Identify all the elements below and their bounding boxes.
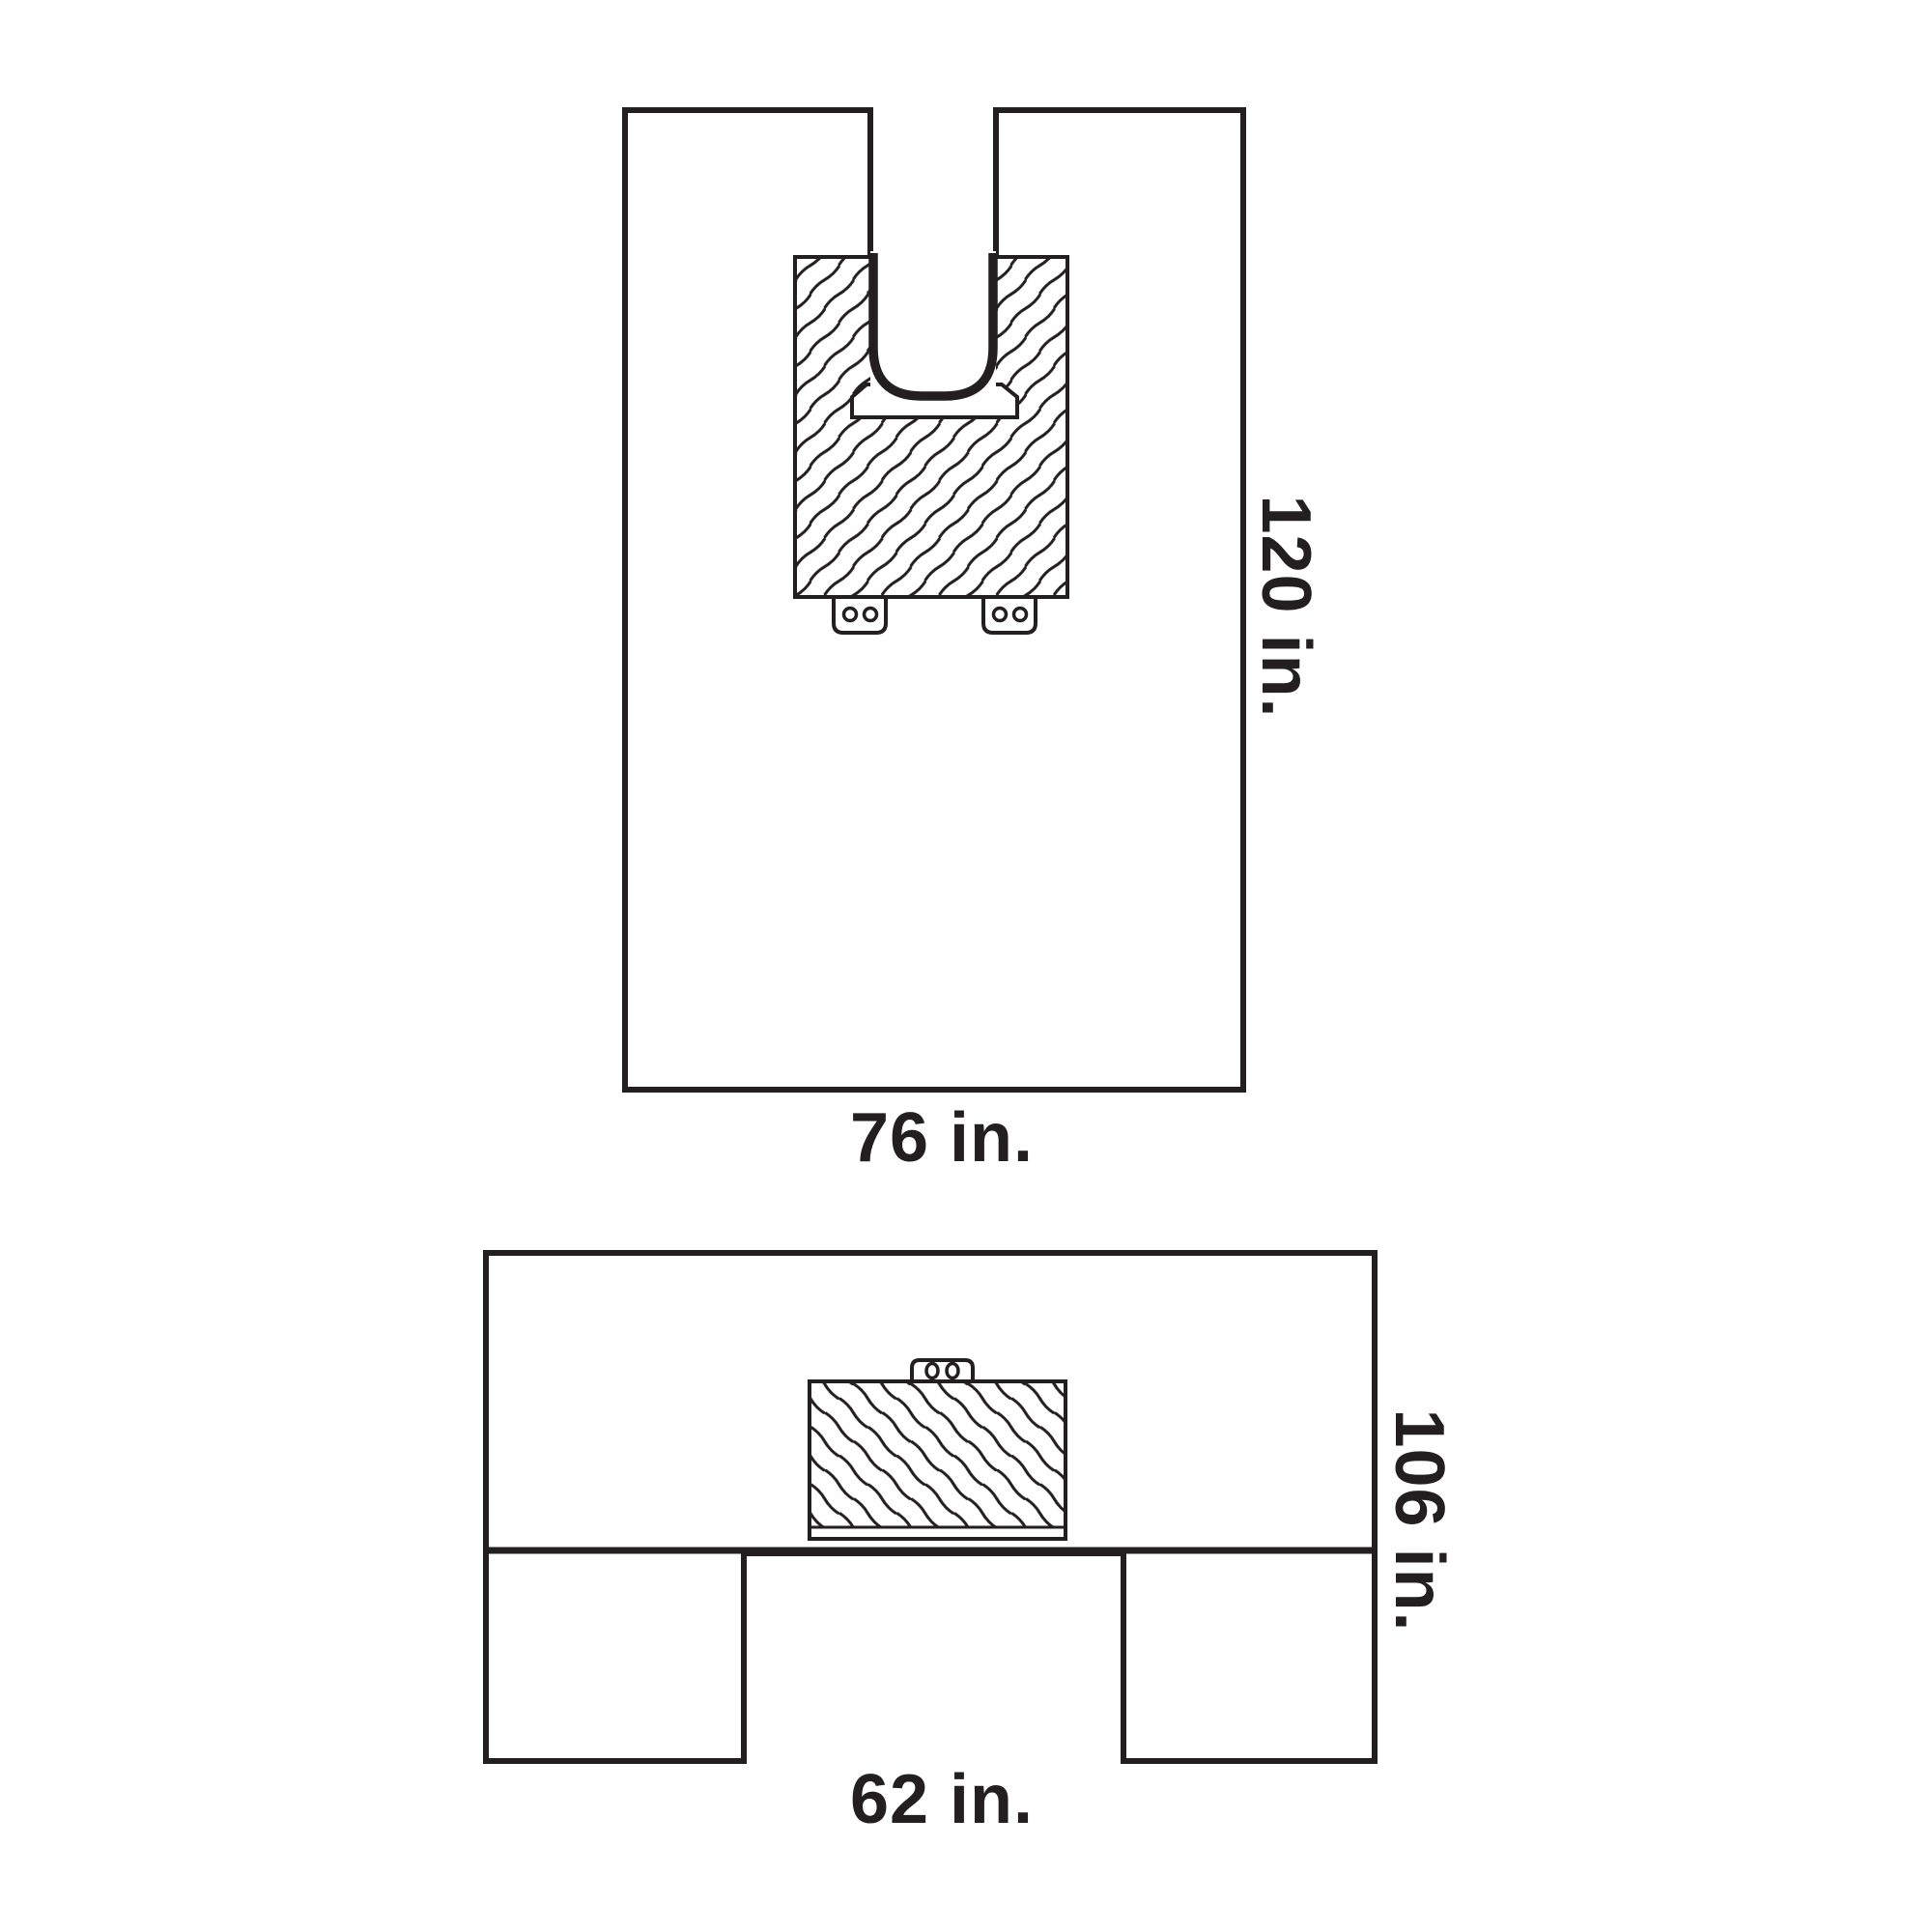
diagram-page: 76 in. 120 in. 62 in. 106 in. xyxy=(0,0,1932,1932)
tab-hole xyxy=(947,1364,958,1378)
tab-hole xyxy=(865,609,877,621)
tab-hole xyxy=(994,609,1007,621)
bottom-drape-figure: 62 in. 106 in. xyxy=(486,1253,1458,1838)
bottom-width-label: 62 in. xyxy=(850,1761,1034,1838)
drape-dimension-diagram: 76 in. 120 in. 62 in. 106 in. xyxy=(0,0,1932,1932)
u-channel-interior xyxy=(870,251,996,389)
top-width-label: 76 in. xyxy=(850,1099,1034,1177)
bottom-hatch-area xyxy=(810,1381,1065,1527)
top-height-label: 120 in. xyxy=(1247,495,1324,718)
bottom-height-label: 106 in. xyxy=(1380,1408,1458,1632)
tab-hole xyxy=(1014,609,1027,621)
pouch-shelf xyxy=(852,384,1017,417)
top-tube-holder-tab-left xyxy=(834,597,886,633)
tab-hole xyxy=(844,609,857,621)
tab-hole xyxy=(926,1364,938,1378)
bottom-reinforcement-patch xyxy=(810,1381,1065,1539)
top-tube-holder-tab-right xyxy=(983,597,1036,633)
top-drape-figure: 76 in. 120 in. xyxy=(625,110,1324,1177)
